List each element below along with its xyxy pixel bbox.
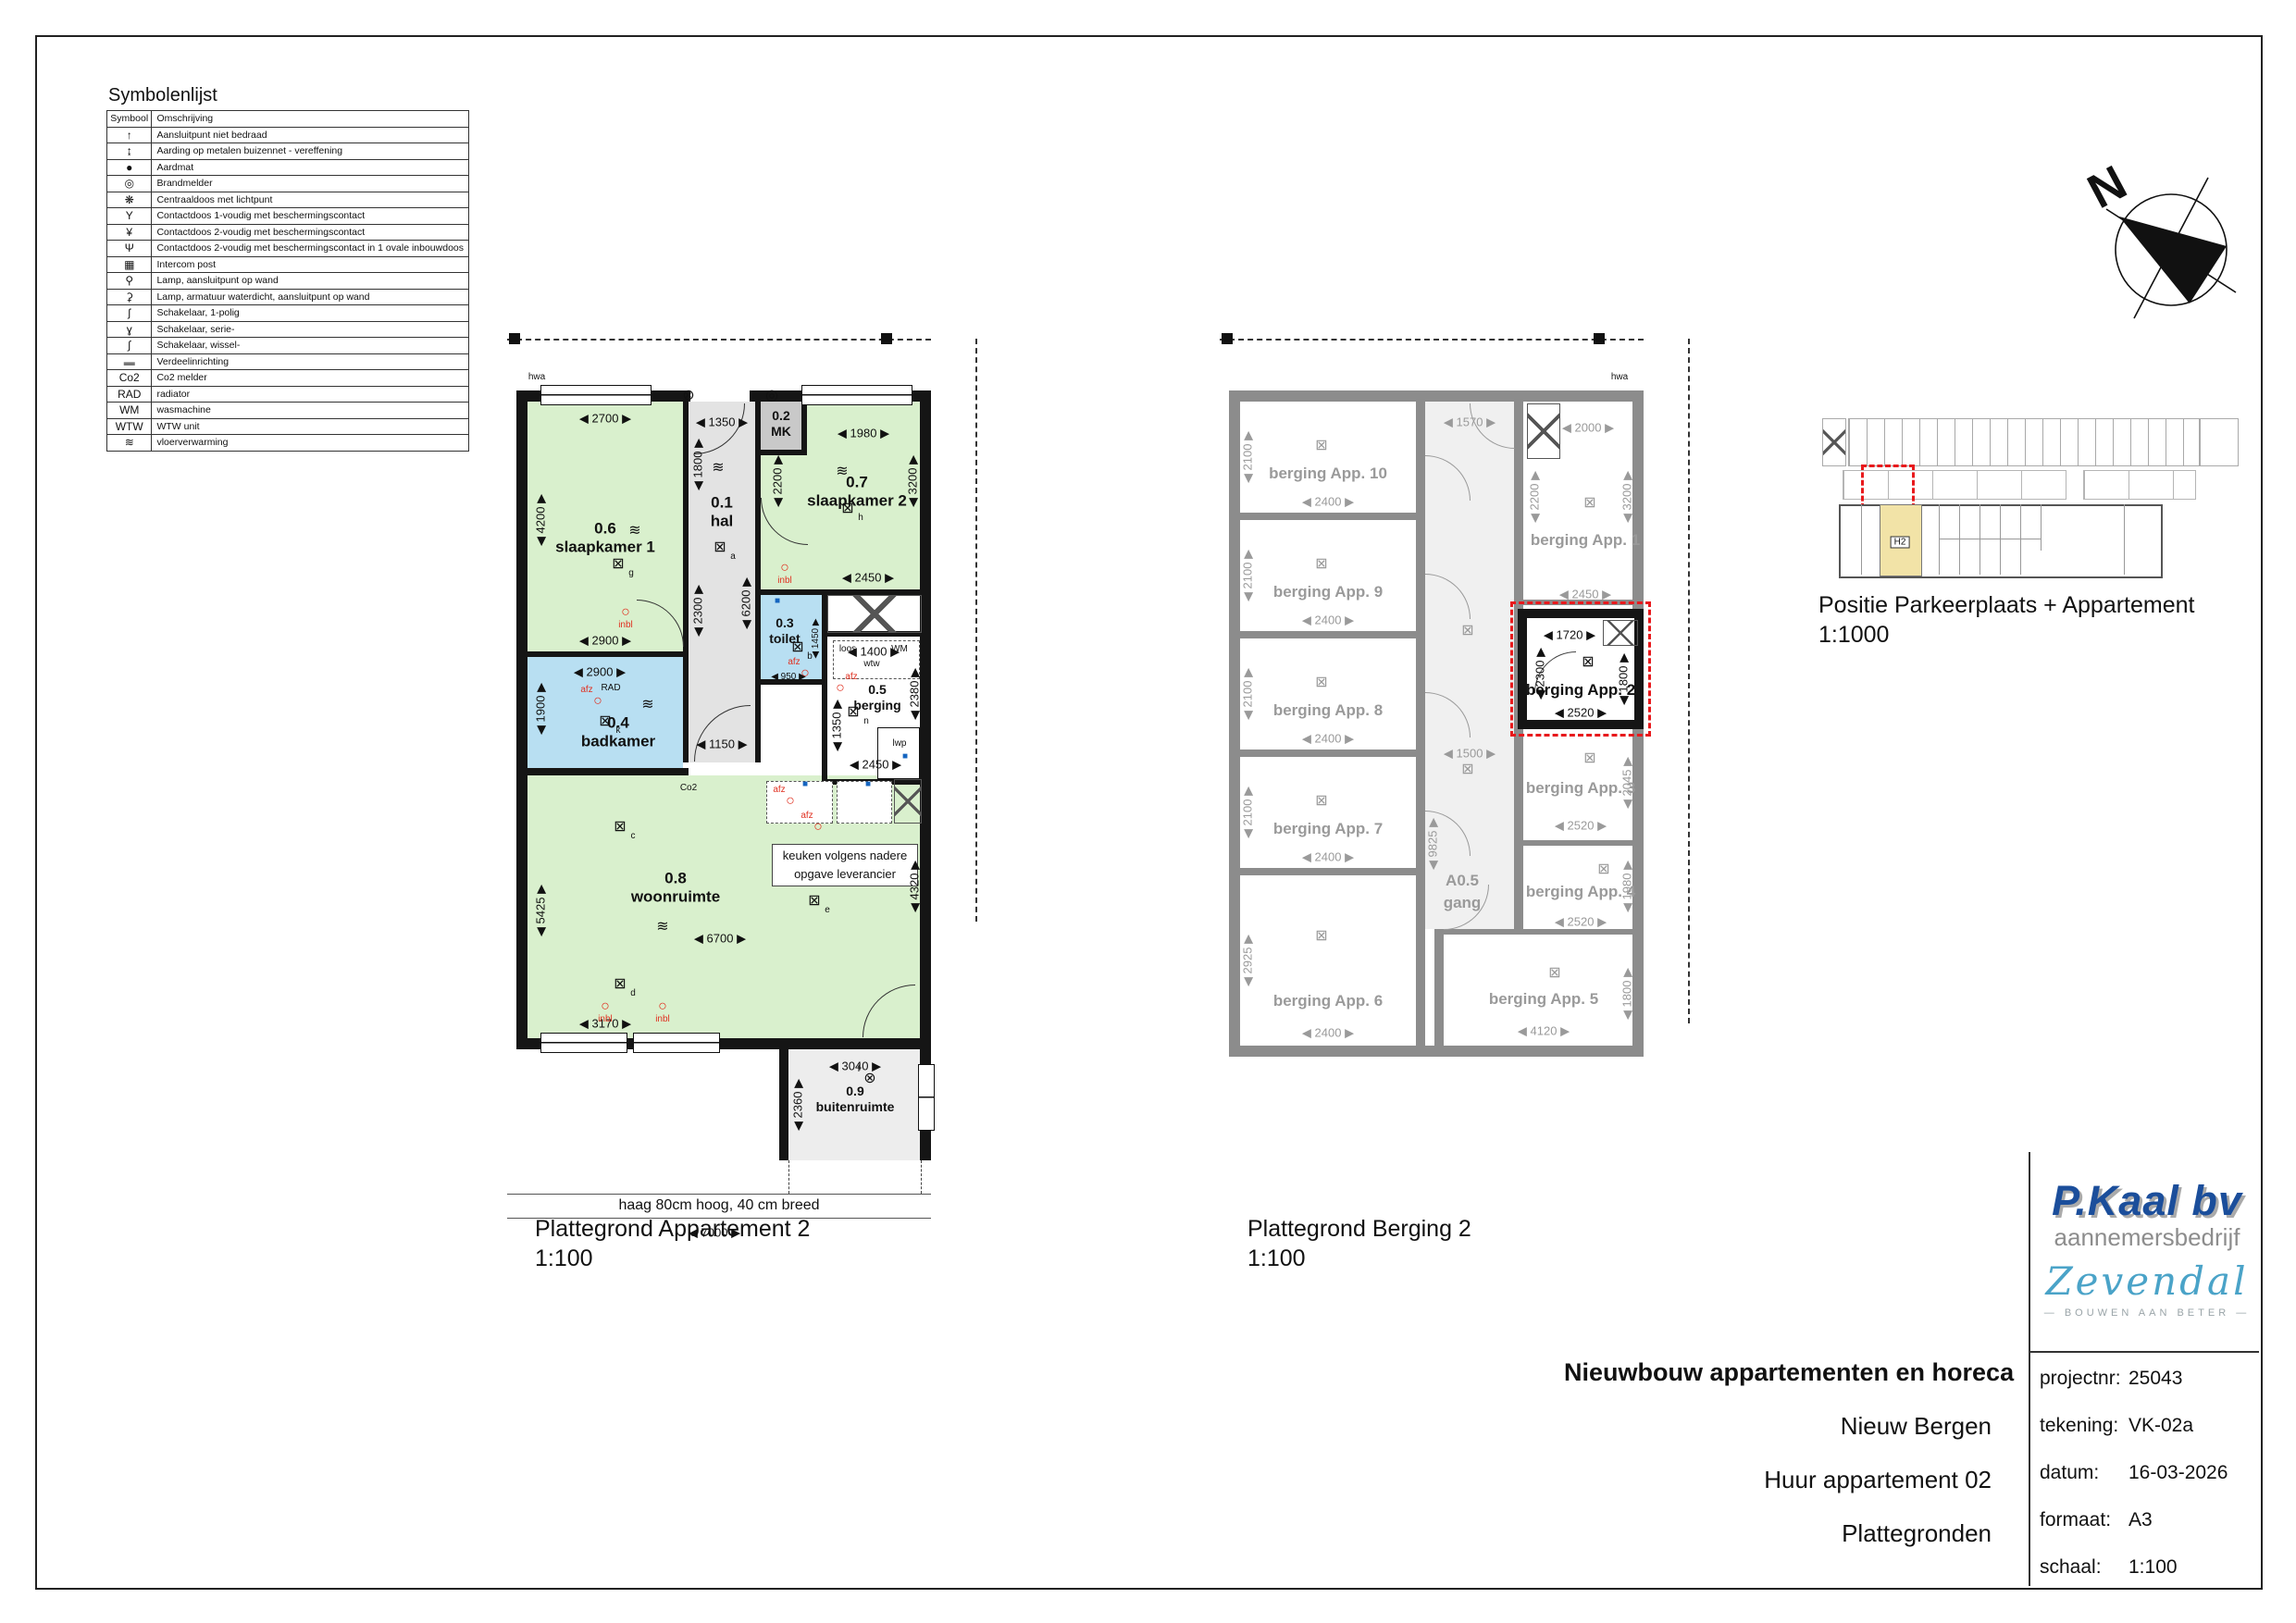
legend-description: Intercom post [152,256,469,273]
legend-row: ≋vloerverwarming [107,435,469,452]
switch-letter: g [628,569,634,578]
project-title: Nieuwbouw appartementen en horeca [1564,1358,1992,1387]
dim-1450: ◀ 1450 ▶ [812,618,821,658]
co2-label: Co2 [680,784,697,793]
inbl-outlet-icon: ○ [621,605,630,620]
field-datum: datum: 16-03-2026 [2040,1462,2253,1484]
legend-row: ɣSchakelaar, serie- [107,321,469,338]
unit-tag: H2 [1891,537,1910,549]
dim-2100: ◀ 2100 ▶ [1242,787,1254,838]
floor-heating-icon: ≋ [641,698,653,712]
switch-letter: f [858,1065,861,1074]
legend-symbol-icon: ⚲ [107,273,152,290]
wall-socket-icon: ■ [902,752,908,762]
legend-description: Aarding op metalen buizennet - vereffeni… [152,143,469,160]
dim-5425: ◀ 5425 ▶ [535,885,547,936]
dim-9825: ◀ 9825 ▶ [1427,818,1439,870]
legend-description: WTW unit [152,418,469,435]
switch-letter: e [825,906,830,915]
afz-outlet-icon: ○ [800,666,810,681]
dim-1350: ◀ 1350 ▶ [696,416,748,428]
light-point-icon: ⊠ [599,714,611,729]
berging-annotations: ◀ 2100 ▶◀ 2100 ▶◀ 2100 ▶◀ 2100 ▶◀ 2925 ▶… [1220,326,1710,1307]
light-point-icon: ⊠ [1315,675,1327,690]
legend-header-description: Omschrijving [152,111,469,128]
berging-plan-title: Plattegrond Berging 2 [1247,1216,1471,1243]
switch-letter: a [730,552,736,562]
dim-2400: ◀ 2400 ▶ [1302,733,1354,745]
apartment-floorplan: haag 80cm hoog, 40 cm breed keuken volge… [507,326,998,1307]
inbl-label: inbl [777,576,792,586]
parking-row-lower-right [2083,470,2196,500]
legend-symbol-icon: ▦ [107,256,152,273]
hwa-label: hwa [528,373,545,382]
logo-pkaal-subtitle: aannemersbedrijf [2036,1223,2258,1252]
dim-3200: ◀ 3200 ▶ [907,455,919,507]
drawing-sheet: { "legend": { "title": "Symbolenlijst", … [0,0,2296,1623]
legend-row: ●Aardmat [107,159,469,176]
dim-2700: ◀ 2700 ▶ [579,413,631,425]
legend-row: ʃSchakelaar, 1-polig [107,305,469,322]
switch-letter: n [863,717,869,726]
dim-1570: ◀ 1570 ▶ [1444,416,1496,428]
light-point-icon: ⊠ [1548,966,1560,981]
dim-2925: ◀ 2925 ▶ [1242,935,1254,986]
smoke-detector-icon: ◎ [765,389,778,403]
legend-row: ⚲Lamp, aansluitpunt op wand [107,273,469,290]
dim-2900: ◀ 2900 ▶ [579,635,631,647]
dim-2100: ◀ 2100 ▶ [1242,550,1254,601]
lwp-label: lwp [892,739,906,749]
legend-row: ❋Centraaldoos met lichtpunt [107,192,469,208]
dim-1800: ◀ 1800 ▶ [1618,653,1630,705]
light-point-icon: ⊠ [614,977,626,992]
dim-2450: ◀ 2450 ▶ [1559,588,1611,601]
legend-description: Contactdoos 1-voudig met beschermingscon… [152,208,469,225]
legend-row: ¥Contactdoos 2-voudig met beschermingsco… [107,224,469,241]
dim-2900-badkamer: ◀ 2900 ▶ [574,666,626,678]
legend-description: wasmachine [152,403,469,419]
light-point-icon: ⊠ [1315,439,1327,453]
afz-label: afz [580,686,592,695]
floor-heating-icon: ≋ [836,465,848,479]
light-point-icon: ⊠ [1597,862,1609,877]
afz-outlet-icon: ○ [836,681,845,696]
loos-label: loos [839,645,856,654]
dim-2400: ◀ 2400 ▶ [1302,614,1354,626]
legend-row: ◎Brandmelder [107,176,469,192]
legend-description: Schakelaar, 1-polig [152,305,469,322]
legend-header-symbol: Symbool [107,111,152,128]
legend-description: Co2 melder [152,370,469,387]
dim-2450-berging: ◀ 2450 ▶ [850,759,901,771]
light-point-icon: ⊠ [1583,496,1595,511]
inbl-label: inbl [655,1015,670,1024]
wall-lamp-icon: ⊗ [863,1072,875,1086]
legend-row: ∫Schakelaar, wissel- [107,338,469,354]
dim-1800: ◀ 1800 ▶ [692,439,704,490]
afz-outlet-icon: ○ [786,794,795,809]
switch-letter: b [807,652,813,662]
dim-3200: ◀ 3200 ▶ [1621,471,1633,523]
dim-2100: ◀ 2100 ▶ [1242,431,1254,483]
field-tekening: tekening: VK-02a [2040,1415,2253,1437]
inbl-outlet-icon: ○ [658,999,667,1014]
titleblock-divider [2029,1351,2259,1353]
light-point-icon: ⊠ [847,705,859,720]
switch-letter: k [616,726,621,736]
titleblock-description: Nieuwbouw appartementen en horeca Nieuw … [1564,1358,1992,1573]
light-point-icon: ⊠ [808,894,820,909]
dim-2450: ◀ 2450 ▶ [842,572,894,584]
afz-label: afz [800,811,813,821]
legend-symbol-icon: Y [107,208,152,225]
titleblock-fields: projectnr: 25043 tekening: VK-02a datum:… [2040,1368,2253,1604]
legend-description: Brandmelder [152,176,469,192]
building-line [1939,539,2041,539]
floor-heating-icon: ≋ [656,920,668,935]
sheet-name: Plattegronden [1564,1519,1992,1548]
light-point-icon: ⊠ [1315,929,1327,944]
dim-2200: ◀ 2200 ▶ [772,455,784,507]
legend-symbol-icon: ↨ [107,143,152,160]
switch-letter: c [631,832,636,841]
radiator-label: RAD [601,684,620,693]
dim-1980: ◀ 1980 ▶ [1621,861,1633,912]
building-line [2124,504,2125,575]
legend-symbol-icon: Co2 [107,370,152,387]
dim-2000: ◀ 2000 ▶ [1562,422,1614,434]
afz-label: afz [788,658,800,667]
legend-table-body: Symbool Omschrijving ↑Aansluitpunt niet … [107,111,469,452]
dim-1980: ◀ 1980 ▶ [838,427,889,440]
light-point-icon: ⊠ [1315,794,1327,809]
legend-symbol-icon: ʃ [107,305,152,322]
inbl-label: inbl [598,1015,613,1024]
legend-row: ΨContactdoos 2-voudig met beschermingsco… [107,241,469,257]
building-line [2000,504,2001,575]
legend-description: radiator [152,386,469,403]
light-point-icon: ⊠ [1583,751,1595,766]
legend-row: ↑Aansluitpunt niet bedraad [107,127,469,143]
inbl-outlet-icon: ○ [601,999,610,1014]
light-point-icon: ⊠ [1582,655,1594,670]
legend-symbol-icon: WTW [107,418,152,435]
building-line [1861,504,1862,575]
dim-6200: ◀ 6200 ▶ [740,577,752,629]
dim-2200: ◀ 2200 ▶ [1529,471,1541,523]
legend-description: Contactdoos 2-voudig met beschermingscon… [152,224,469,241]
dim-2100: ◀ 2100 ▶ [1242,668,1254,720]
wall-socket-icon: ■ [802,780,808,789]
building-line [2041,504,2042,551]
dim-2520: ◀ 2520 ▶ [1555,707,1607,719]
legend-row: ⚳Lamp, armatuur waterdicht, aansluitpunt… [107,289,469,305]
legend-symbol-icon: ∫ [107,338,152,354]
legend-description: Aardmat [152,159,469,176]
legend-symbol-icon: ● [107,159,152,176]
field-formaat: formaat: A3 [2040,1509,2253,1531]
legend-description: vloerverwarming [152,435,469,452]
light-point-icon: ⊠ [1461,762,1473,777]
legend-title: Symbolenlijst [108,85,477,106]
highlighted-parking-spot [1861,465,1915,509]
floor-heating-icon: ≋ [628,524,640,539]
legend-symbol-icon: ɣ [107,321,152,338]
afz-outlet-icon: ○ [593,694,602,709]
switch-letter: h [858,514,863,523]
north-arrow-graphic: N [2080,137,2238,331]
legend-symbol-icon: WM [107,403,152,419]
light-point-icon: ⊠ [612,557,624,572]
dim-1900: ◀ 1900 ▶ [535,683,547,735]
afz-outlet-icon: ○ [813,820,823,835]
legend-symbol-icon: ↑ [107,127,152,143]
light-point-icon: ⊠ [614,820,626,835]
legend-description: Schakelaar, wissel- [152,338,469,354]
dim-2045: ◀ 2045 ▶ [1621,757,1633,809]
storage-floorplan: berging App. 10 berging App. 9 berging A… [1220,326,1710,1307]
logo-pkaal: P.Kaal bv aannemersbedrijf [2036,1177,2258,1252]
legend-symbol-icon: Ψ [107,241,152,257]
legend-symbol-icon: ≋ [107,435,152,452]
legend-symbol-icon: ¥ [107,224,152,241]
light-point-icon: ⊠ [791,640,803,655]
dim-1720: ◀ 1720 ▶ [1544,629,1595,641]
legend-row: ▦Intercom post [107,256,469,273]
ceiling-lamp-icon: ⊗ [682,389,694,403]
wall-socket-icon: ■ [775,597,780,606]
legend-header-row: Symbool Omschrijving [107,111,469,128]
parking-row-top [1848,418,2200,466]
dim-4320: ◀ 4320 ▶ [909,861,921,912]
legend-symbol-icon: ◎ [107,176,152,192]
afz-label: afz [773,786,785,795]
titleblock-divider [2029,1152,2030,1586]
logo-zevendal-text: Zevendal [2036,1258,2258,1304]
legend-description: Centraaldoos met lichtpunt [152,192,469,208]
building-line [1939,504,1940,575]
logo-pkaal-text: P.Kaal bv [2036,1177,2258,1225]
dim-2520: ◀ 2520 ▶ [1555,916,1607,928]
building-line [1980,504,1980,575]
dim-1800-app5: ◀ 1800 ▶ [1621,968,1633,1020]
logo-zevendal-tagline: — BOUWEN AAN BETER — [2036,1307,2258,1319]
light-point-icon: ⊠ [1315,557,1327,572]
dim-4120: ◀ 4120 ▶ [1518,1025,1570,1037]
dim-1500: ◀ 1500 ▶ [1444,748,1496,760]
symbol-legend: Symbolenlijst Symbool Omschrijving ↑Aans… [106,85,477,452]
legend-table: Symbool Omschrijving ↑Aansluitpunt niet … [106,110,469,452]
switch-letter: d [630,989,636,998]
light-point-icon: ⊠ [714,540,726,555]
north-arrow: N [2080,137,2238,331]
logo-zevendal: Zevendal — BOUWEN AAN BETER — [2036,1258,2258,1319]
legend-description: Lamp, aansluitpunt op wand [152,273,469,290]
building-line [1959,504,1960,575]
light-point-icon: ⊠ [841,502,853,516]
apartment-plan-scale: 1:100 [535,1245,593,1272]
inbl-outlet-icon: ○ [780,561,789,576]
wtw-label: wtw [863,660,879,669]
dim-2400: ◀ 2400 ▶ [1302,851,1354,863]
field-projectnr: projectnr: 25043 [2040,1368,2253,1390]
field-schaal: schaal: 1:100 [2040,1556,2253,1579]
legend-description: Contactdoos 2-voudig met beschermingscon… [152,241,469,257]
dim-2380: ◀ 2380 ▶ [909,668,921,720]
wall-socket-icon: ■ [865,780,871,789]
dim-2400: ◀ 2400 ▶ [1302,1027,1354,1039]
dim-2400: ◀ 2400 ▶ [1302,496,1354,508]
legend-row: YContactdoos 1-voudig met beschermingsco… [107,208,469,225]
dim-4200: ◀ 4200 ▶ [535,494,547,546]
berging-plan-scale: 1:100 [1247,1245,1306,1272]
legend-description: Aansluitpunt niet bedraad [152,127,469,143]
legend-symbol-icon: ❋ [107,192,152,208]
legend-symbol-icon: RAD [107,386,152,403]
apartment-plan-title: Plattegrond Appartement 2 [535,1216,810,1243]
overview-siteplan: H2 Positie Parkeerplaats + Appartement 1… [1818,407,2253,712]
legend-row: WTWWTW unit [107,418,469,435]
hwa-label: hwa [1611,373,1628,382]
dim-2300: ◀ 2300 ▶ [1534,648,1546,700]
legend-row: RADradiator [107,386,469,403]
light-point-icon: ⊠ [1461,624,1473,638]
legend-symbol-icon: ▬ [107,353,152,370]
site-hatch [1822,418,1846,466]
legend-row: WMwasmachine [107,403,469,419]
building-line [2020,504,2021,575]
project-location: Nieuw Bergen [1564,1412,1992,1441]
legend-description: Lamp, armatuur waterdicht, aansluitpunt … [152,289,469,305]
wm-label: WM [891,645,908,654]
dim-1350-berging: ◀ 1350 ▶ [831,700,843,751]
legend-row: ▬Verdeelinrichting [107,353,469,370]
overview-scale: 1:1000 [1818,622,1889,649]
legend-symbol-icon: ⚳ [107,289,152,305]
inbl-label: inbl [618,621,633,630]
project-subject: Huur appartement 02 [1564,1466,1992,1494]
dim-2360: ◀ 2360 ▶ [792,1079,804,1131]
dim-2520: ◀ 2520 ▶ [1555,820,1607,832]
dim-1150: ◀ 1150 ▶ [696,738,747,750]
floor-heating-icon: ≋ [712,461,724,476]
legend-row: ↨Aarding op metalen buizennet - vereffen… [107,143,469,160]
site-structure [2200,418,2239,466]
legend-description: Verdeelinrichting [152,353,469,370]
afz-label: afz [845,673,857,682]
legend-description: Schakelaar, serie- [152,321,469,338]
overview-title: Positie Parkeerplaats + Appartement [1818,592,2194,619]
dim-6700: ◀ 6700 ▶ [694,933,746,945]
apartment-annotations: ◀ 2700 ▶◀ 1350 ▶◀ 1980 ▶◀ 4200 ▶◀ 1800 ▶… [507,326,998,1307]
legend-row: Co2Co2 melder [107,370,469,387]
dim-2300: ◀ 2300 ▶ [692,585,704,637]
